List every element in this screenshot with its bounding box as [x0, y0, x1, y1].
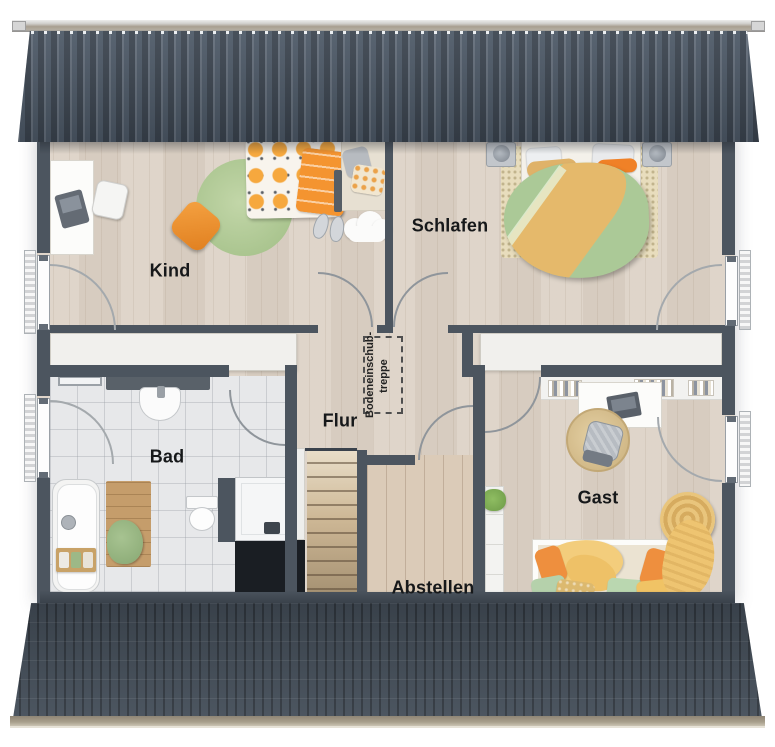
- radiator-schlafen: [739, 250, 751, 330]
- kind-laptop-screen: [59, 195, 82, 214]
- attic-ladder-label-line1: Bodeneinschub-: [364, 334, 378, 418]
- staircase-top-edge: [303, 448, 357, 451]
- window-bad-cap-top: [39, 398, 48, 404]
- roof-ridge-cap-right: [751, 21, 765, 31]
- roof-top-surface: [18, 31, 759, 142]
- window-kind-cap-bottom: [39, 324, 48, 330]
- wall-outer-left-3: [37, 478, 50, 605]
- wall-gast-left: [473, 365, 485, 605]
- schlafen-lamp-right: [649, 145, 666, 162]
- wall-flur-stub: [377, 325, 393, 333]
- roof-bottom-surface: [10, 603, 765, 718]
- room-label-gast: Gast: [578, 488, 619, 509]
- room-label-bad: Bad: [150, 447, 185, 468]
- schlafen-duvet: [502, 161, 651, 281]
- wall-outer-left-1: [37, 133, 50, 253]
- wall-abstellen-top: [367, 455, 415, 465]
- gast-books-left: [548, 380, 582, 397]
- wall-outer-left-2: [37, 330, 50, 396]
- kind-pillow-pattern: [350, 164, 386, 197]
- wall-bad-right: [285, 365, 297, 605]
- radiator-gast: [739, 411, 751, 487]
- room-label-schlafen: Schlafen: [412, 216, 489, 237]
- wall-outer-right-3: [722, 483, 735, 605]
- wall-outer-right-2: [722, 325, 735, 415]
- bad-tub-caddy: [56, 548, 96, 572]
- wall-shower-stub: [218, 478, 235, 542]
- bad-towel-rail: [58, 376, 102, 386]
- kind-bed-frame-edge: [334, 170, 342, 212]
- bad-toilet-bowl: [189, 507, 215, 531]
- radiator-kind: [24, 250, 36, 334]
- wall-gast-top: [541, 365, 722, 377]
- attic-ladder-label: Bodeneinschub- treppe: [364, 334, 404, 418]
- window-gast-cap-top: [727, 416, 736, 422]
- wall-stairs-right: [357, 450, 367, 605]
- room-label-flur: Flur: [323, 411, 358, 432]
- roof-ridge-cap-left: [12, 21, 26, 31]
- window-schlafen: [725, 256, 738, 326]
- room-label-kind: Kind: [150, 261, 191, 282]
- gast-books-right: [688, 380, 714, 396]
- window-schlafen-cap-top: [727, 256, 736, 262]
- bad-bathtub: [52, 479, 100, 593]
- attic-ladder-label-line2: treppe: [378, 334, 392, 418]
- schlafen-lamp-left: [493, 145, 510, 162]
- floor-plan-image: Kind Schlafen Bad Flur Abstellen Gast Bo…: [0, 0, 775, 747]
- wall-bad-top: [50, 365, 229, 377]
- gast-plant: [482, 489, 506, 511]
- room-label-abstellen: Abstellen: [392, 578, 475, 599]
- window-gast-cap-bottom: [727, 477, 736, 483]
- wall-kind-schlafen: [385, 133, 393, 325]
- window-bad-cap-bottom: [39, 472, 48, 478]
- radiator-bad: [24, 394, 36, 482]
- window-kind: [37, 255, 50, 330]
- window-kind-cap-top: [39, 255, 48, 261]
- roof-ridge: [12, 20, 765, 32]
- window-gast: [725, 416, 738, 483]
- bad-green-towels: [107, 520, 143, 564]
- window-schlafen-cap-bottom: [727, 320, 736, 326]
- staircase: [307, 450, 357, 605]
- roof-top: [12, 20, 765, 142]
- roof-eave: [10, 716, 765, 728]
- wall-outer-right-1: [722, 133, 735, 255]
- window-bad: [37, 398, 50, 478]
- wall-band-joint: [462, 325, 473, 377]
- roof-bottom: [10, 603, 765, 727]
